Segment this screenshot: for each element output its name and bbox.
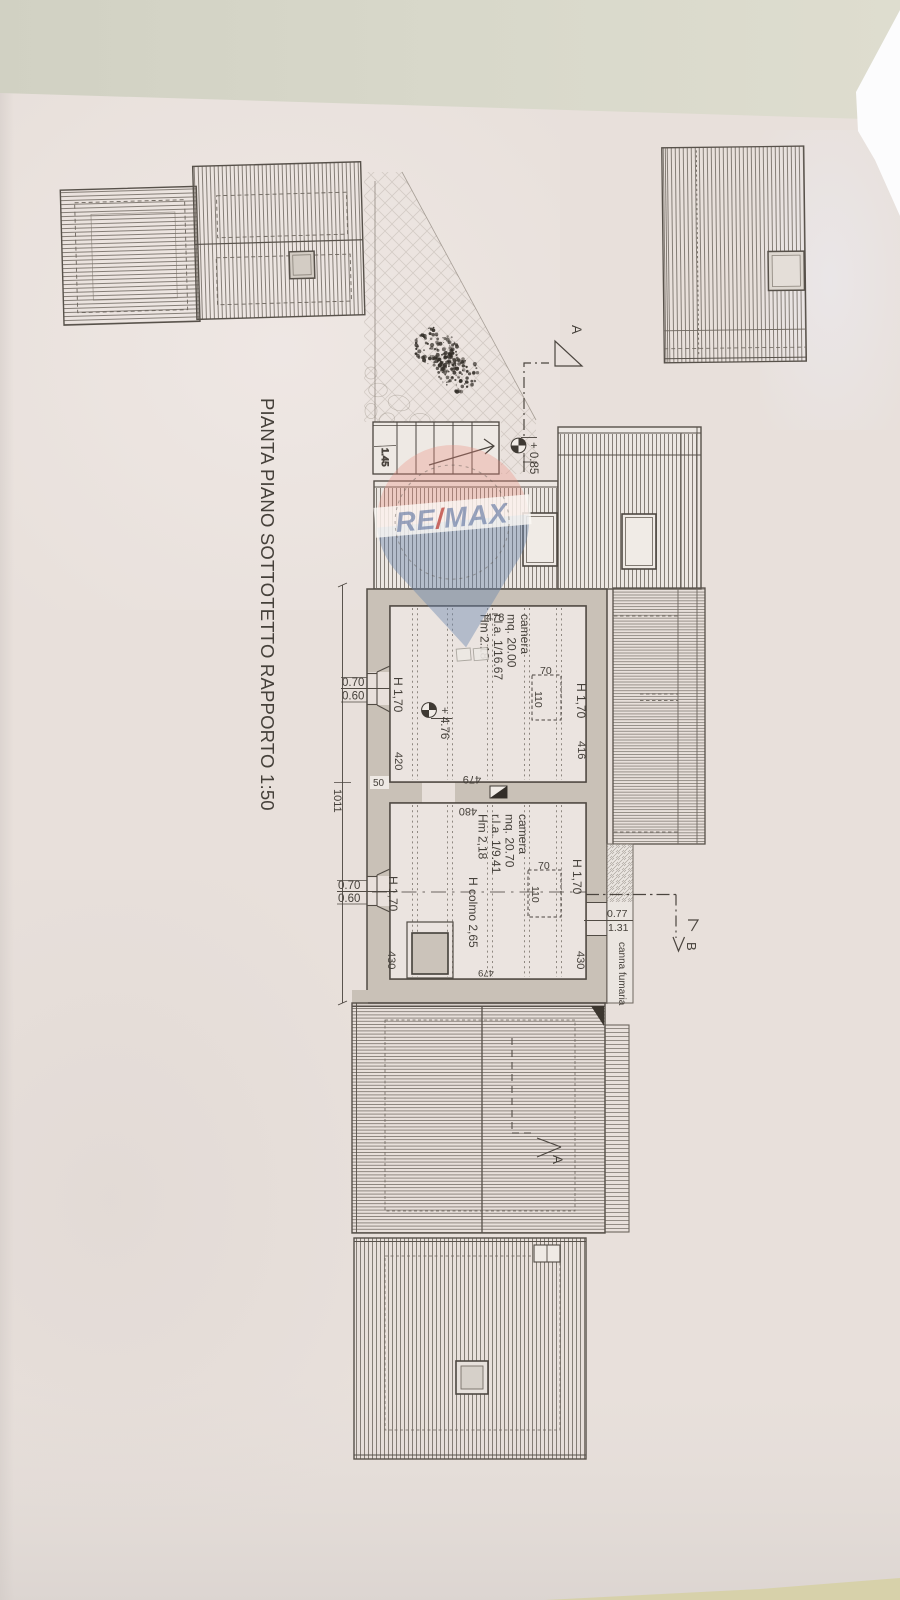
svg-text:H 1,70: H 1,70 [574, 683, 588, 719]
svg-text:1.31: 1.31 [608, 922, 629, 934]
svg-text:479: 479 [478, 967, 494, 978]
svg-text:A: A [569, 325, 584, 334]
svg-text:430: 430 [385, 951, 397, 969]
svg-text:0.70: 0.70 [338, 880, 360, 892]
svg-text:H colmo 2,65: H colmo 2,65 [466, 877, 480, 948]
svg-text:110: 110 [532, 691, 544, 708]
svg-text:canna fumaria: canna fumaria [616, 942, 627, 1006]
svg-text:A: A [550, 1155, 565, 1164]
svg-text:420: 420 [392, 752, 404, 770]
svg-text:0.60: 0.60 [338, 893, 360, 905]
svg-text:B: B [684, 942, 699, 951]
svg-text:+ 4.76: + 4.76 [438, 707, 450, 739]
svg-text:0.77: 0.77 [607, 908, 628, 920]
svg-text:416: 416 [575, 741, 587, 759]
svg-text:478: 478 [486, 612, 504, 624]
svg-text:H 1,70: H 1,70 [386, 876, 400, 912]
svg-text:1.45: 1.45 [379, 448, 390, 467]
svg-text:50: 50 [373, 778, 385, 789]
svg-text:479: 479 [463, 773, 481, 785]
svg-text:+ 0.85: + 0.85 [527, 442, 539, 474]
svg-text:70: 70 [538, 860, 550, 872]
svg-text:70: 70 [540, 665, 552, 677]
svg-text:H 1,70: H 1,70 [391, 677, 405, 713]
svg-text:1011: 1011 [331, 789, 343, 813]
svg-text:PIANTA PIANO SOTTOTETTO RAPPOR: PIANTA PIANO SOTTOTETTO RAPPORTO 1:50 [257, 398, 278, 811]
svg-text:0.70: 0.70 [342, 677, 364, 689]
svg-text:110: 110 [529, 886, 541, 903]
svg-text:0.60: 0.60 [342, 691, 364, 703]
svg-text:430: 430 [574, 951, 586, 969]
svg-text:480: 480 [459, 805, 477, 817]
svg-text:H 1,70: H 1,70 [570, 859, 584, 895]
